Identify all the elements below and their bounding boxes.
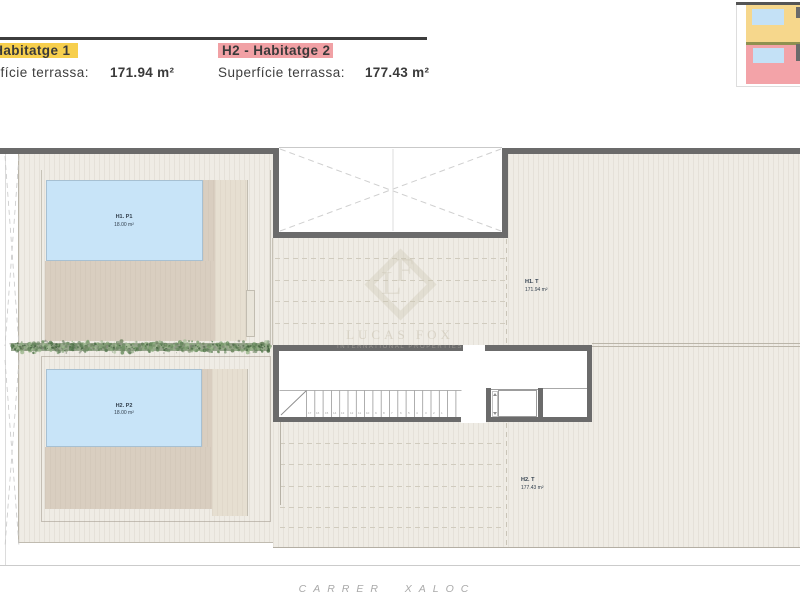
svg-text:17: 17 — [308, 411, 312, 415]
svg-text:12: 12 — [350, 411, 354, 415]
svg-text:13: 13 — [341, 411, 345, 415]
svg-text:2: 2 — [433, 411, 435, 415]
svg-text:6: 6 — [400, 411, 402, 415]
svg-text:14: 14 — [333, 411, 337, 415]
svg-text:10: 10 — [366, 411, 370, 415]
svg-text:7: 7 — [391, 411, 393, 415]
svg-text:9: 9 — [375, 411, 377, 415]
svg-text:15: 15 — [325, 411, 329, 415]
svg-text:4: 4 — [416, 411, 418, 415]
svg-text:16: 16 — [316, 411, 320, 415]
svg-text:1: 1 — [441, 411, 443, 415]
svg-text:5: 5 — [408, 411, 410, 415]
svg-text:8: 8 — [383, 411, 385, 415]
svg-text:3: 3 — [425, 411, 427, 415]
svg-text:11: 11 — [358, 411, 361, 415]
